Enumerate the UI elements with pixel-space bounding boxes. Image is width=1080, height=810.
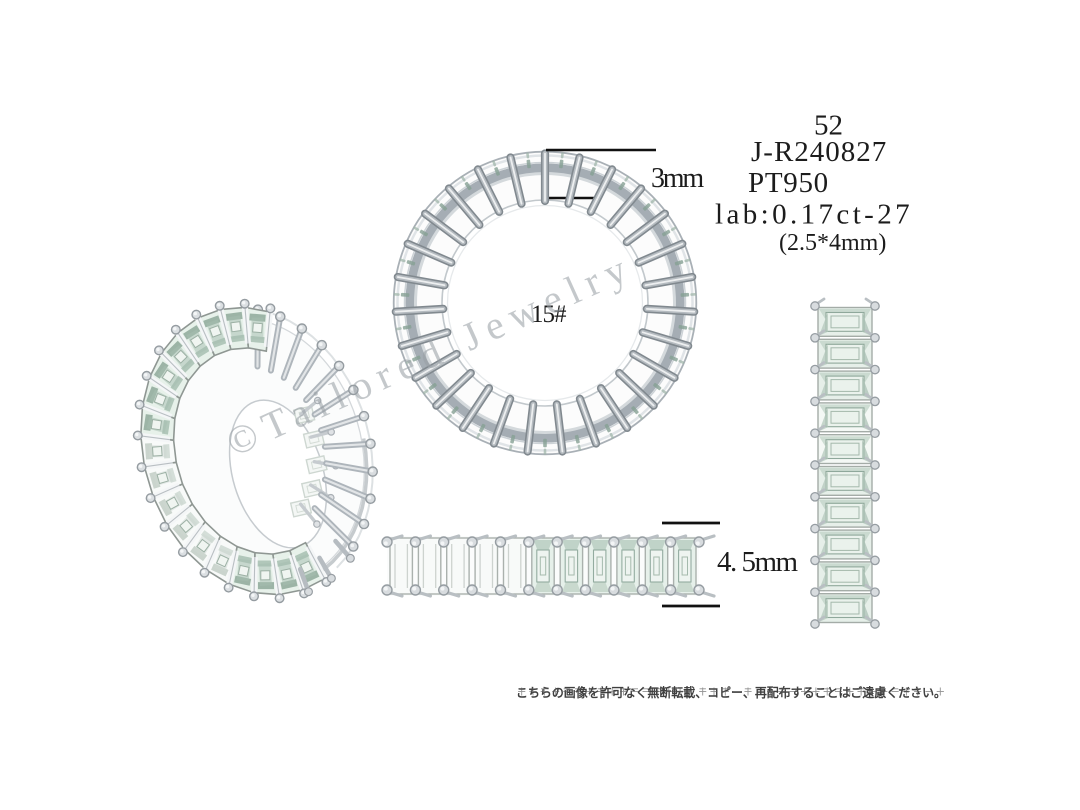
svg-text:4. 5mm: 4. 5mm xyxy=(717,546,799,578)
svg-text:3mm: 3mm xyxy=(651,163,704,194)
svg-text:J-R240827: J-R240827 xyxy=(751,136,887,168)
svg-text:(2.5*4mm): (2.5*4mm) xyxy=(779,230,886,256)
svg-text:PT950: PT950 xyxy=(748,167,829,199)
svg-text:lab:0.17ct-27: lab:0.17ct-27 xyxy=(715,199,913,231)
svg-text:こちらの画像を許可なく無断転載、コピー、再配布することはご遠: こちらの画像を許可なく無断転載、コピー、再配布することはご遠慮ください。 xyxy=(516,685,946,700)
